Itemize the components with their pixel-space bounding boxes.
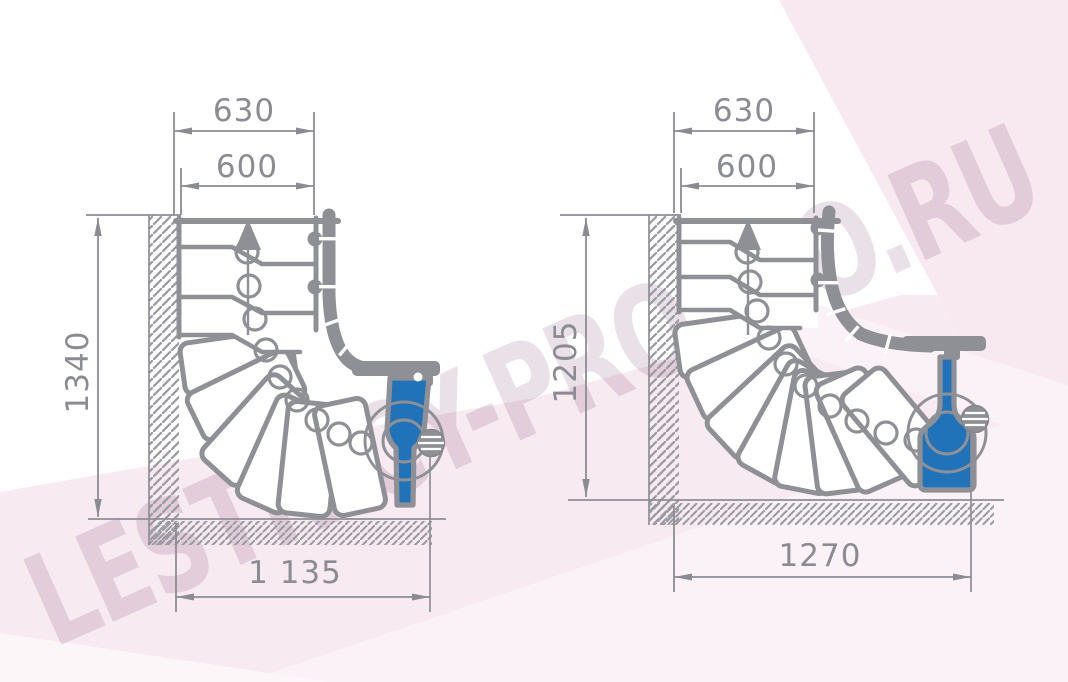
- staircase-plan-right: 630 600 1205: [548, 93, 1004, 592]
- baluster-joint: [811, 221, 826, 236]
- wall-hatch: [649, 215, 679, 525]
- post-notch: [414, 373, 423, 382]
- floor-hatch: [649, 503, 994, 525]
- dim-label: 600: [216, 149, 278, 185]
- dimension-width-clear: 600: [681, 149, 814, 213]
- stringer-band: [827, 212, 930, 346]
- drawing-canvas: LESTNICY-PROSTO.RU: [0, 0, 1068, 682]
- staircase-plan-left: 630 600 1340: [60, 93, 446, 612]
- wall-hatch: [149, 215, 179, 545]
- dimension-depth: 1340: [60, 218, 102, 517]
- dim-label: 1270: [779, 538, 862, 574]
- baluster-joint: [811, 273, 826, 288]
- staircase-drawings: 630 600 1340: [0, 0, 1068, 682]
- dim-label: 630: [213, 93, 275, 129]
- floor-hatch: [149, 521, 432, 545]
- dimension-depth: 1205: [548, 218, 590, 497]
- winder-steps: [179, 328, 387, 517]
- dim-label: 1340: [60, 331, 96, 414]
- dim-label: 1 135: [248, 555, 342, 591]
- dimension-width-clear: 600: [181, 149, 314, 215]
- handrail-cap: [902, 336, 986, 351]
- dim-label: 630: [713, 93, 775, 129]
- stringer-joint: [319, 237, 339, 240]
- dim-label: 1205: [548, 321, 584, 404]
- stringer-joint: [319, 285, 339, 288]
- dim-label: 600: [716, 149, 778, 185]
- handrail-cap: [352, 361, 440, 376]
- stringer-joint: [818, 281, 838, 284]
